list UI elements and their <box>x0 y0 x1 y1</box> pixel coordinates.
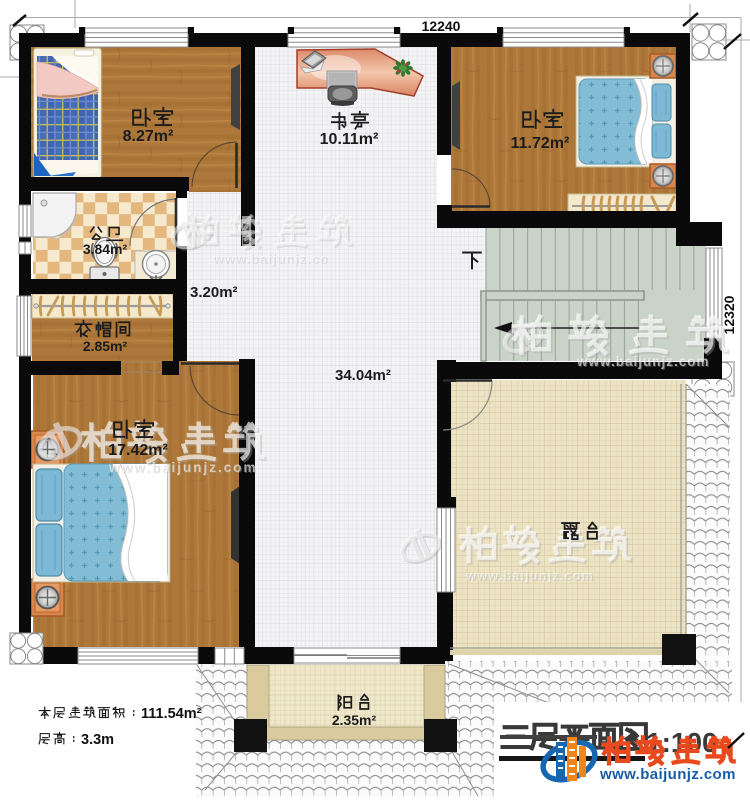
svg-text:8.27m²: 8.27m² <box>123 128 174 145</box>
svg-text:www.baijunjz.com: www.baijunjz.com <box>466 569 595 584</box>
svg-text:3.84m²: 3.84m² <box>83 241 128 257</box>
svg-text:10.11m²: 10.11m² <box>320 131 379 148</box>
svg-text:www.baijunjz.com: www.baijunjz.com <box>577 355 711 370</box>
svg-text:3.3m: 3.3m <box>81 732 114 748</box>
svg-text:111.54m²: 111.54m² <box>141 706 202 722</box>
svg-text:17.42m²: 17.42m² <box>108 442 168 459</box>
svg-text:3.20m²: 3.20m² <box>190 284 238 301</box>
svg-text:11.72m²: 11.72m² <box>511 135 570 152</box>
svg-text:www.baijunjz.com: www.baijunjz.com <box>109 461 259 476</box>
svg-text:2.85m²: 2.85m² <box>83 338 128 354</box>
svg-text:12240: 12240 <box>422 18 461 34</box>
svg-text:2.35m²: 2.35m² <box>332 712 377 728</box>
svg-text:www.baijunjz.co: www.baijunjz.co <box>213 252 330 267</box>
svg-text:www.baijunjz.com: www.baijunjz.com <box>599 766 736 783</box>
svg-text:34.04m²: 34.04m² <box>335 367 391 384</box>
